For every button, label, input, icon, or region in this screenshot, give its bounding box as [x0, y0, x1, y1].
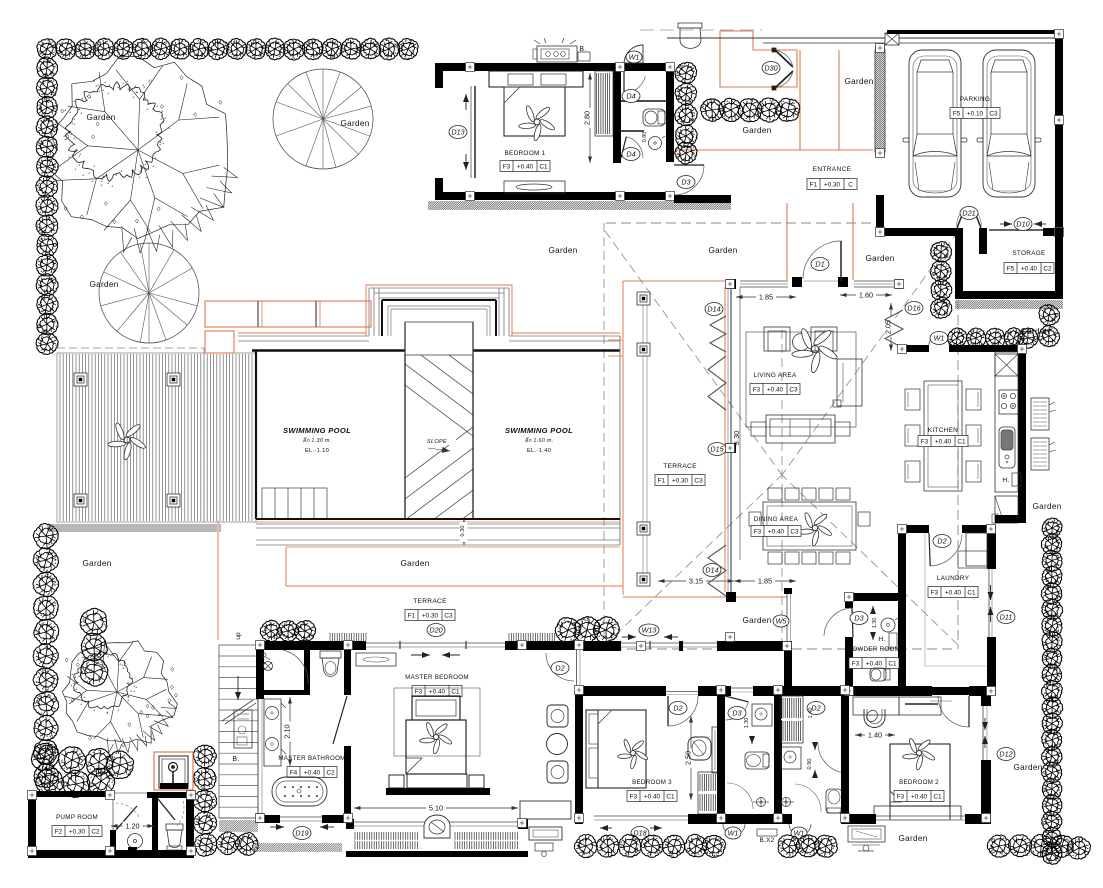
- svg-text:BEDROOM 2: BEDROOM 2: [899, 779, 939, 786]
- svg-text:Garden: Garden: [742, 616, 771, 625]
- svg-text:Garden: Garden: [82, 559, 111, 568]
- svg-text:F3: F3: [753, 386, 761, 393]
- svg-text:Garden: Garden: [1032, 502, 1061, 511]
- svg-text:D21: D21: [962, 209, 975, 218]
- svg-text:+0.40: +0.40: [1021, 265, 1038, 272]
- svg-text:+0.10: +0.10: [967, 110, 984, 117]
- svg-text:D1: D1: [815, 260, 824, 269]
- svg-text:F3: F3: [503, 163, 511, 170]
- svg-text:2.80: 2.80: [583, 111, 592, 125]
- svg-text:W5: W5: [776, 617, 788, 626]
- svg-text:BEDROOM 3: BEDROOM 3: [632, 779, 672, 786]
- svg-text:+0.30: +0.30: [672, 477, 689, 484]
- svg-text:W1: W1: [629, 53, 640, 62]
- svg-text:+0.30: +0.30: [422, 612, 439, 619]
- svg-text:D10: D10: [1016, 220, 1029, 229]
- svg-text:Garden: Garden: [844, 77, 873, 86]
- svg-text:STORAGE: STORAGE: [1012, 250, 1045, 257]
- svg-text:D14: D14: [705, 566, 718, 575]
- svg-text:Garden: Garden: [89, 280, 118, 289]
- svg-text:+0.40: +0.40: [304, 769, 321, 776]
- svg-text:LIVING AREA: LIVING AREA: [753, 372, 797, 379]
- svg-text:F3: F3: [852, 660, 860, 667]
- svg-text:SLOPE: SLOPE: [427, 439, 447, 445]
- svg-text:EL.-1.40: EL.-1.40: [527, 448, 551, 454]
- svg-text:TERRACE: TERRACE: [663, 463, 697, 470]
- svg-text:SWIMMING POOL: SWIMMING POOL: [283, 426, 351, 435]
- svg-text:EL.-1.10: EL.-1.10: [305, 448, 329, 454]
- svg-text:D3: D3: [732, 709, 741, 718]
- svg-text:D2: D2: [673, 704, 682, 713]
- svg-text:up: up: [235, 632, 242, 640]
- svg-text:F3: F3: [630, 793, 638, 800]
- svg-text:PUMP ROOM: PUMP ROOM: [56, 814, 98, 821]
- svg-text:F5: F5: [953, 110, 961, 117]
- svg-text:MASTER BEDROOM: MASTER BEDROOM: [405, 674, 469, 681]
- svg-text:C3: C3: [694, 477, 703, 484]
- svg-text:C1: C1: [666, 793, 675, 800]
- svg-text:D12: D12: [999, 750, 1012, 759]
- svg-text:+0.40: +0.40: [517, 163, 534, 170]
- svg-text:+0.40: +0.40: [644, 793, 661, 800]
- svg-text:1.85: 1.85: [759, 293, 773, 302]
- svg-text:+0.40: +0.40: [945, 589, 962, 596]
- svg-text:F5: F5: [1007, 265, 1015, 272]
- svg-text:D3: D3: [854, 614, 863, 623]
- svg-text:Garden: Garden: [708, 246, 737, 255]
- svg-text:3.15: 3.15: [689, 577, 703, 586]
- svg-text:C: C: [848, 181, 853, 188]
- svg-text:D30: D30: [764, 64, 777, 73]
- svg-text:POWDER ROOM: POWDER ROOM: [848, 646, 900, 653]
- svg-text:+0.40: +0.40: [911, 793, 928, 800]
- svg-text:C3: C3: [444, 612, 453, 619]
- svg-text:SWIMMING POOL: SWIMMING POOL: [505, 426, 573, 435]
- svg-text:F3: F3: [415, 688, 423, 695]
- svg-text:C1: C1: [888, 660, 897, 667]
- svg-text:1.40: 1.40: [808, 708, 814, 719]
- svg-text:+0.40: +0.40: [935, 438, 952, 445]
- svg-text:ลึก 1.30 m.: ลึก 1.30 m.: [302, 437, 331, 444]
- svg-text:C1: C1: [539, 163, 548, 170]
- svg-text:D19: D19: [295, 829, 308, 838]
- svg-text:F4: F4: [290, 769, 298, 776]
- svg-text:1.85: 1.85: [758, 577, 772, 586]
- svg-text:Garden: Garden: [86, 113, 115, 122]
- svg-text:F2: F2: [55, 828, 63, 835]
- svg-text:C1: C1: [451, 688, 460, 695]
- svg-text:F3: F3: [897, 793, 905, 800]
- svg-text:B.X2: B.X2: [759, 837, 774, 844]
- svg-text:Garden: Garden: [898, 834, 927, 843]
- svg-text:Garden: Garden: [340, 119, 369, 128]
- svg-text:+0.40: +0.40: [866, 660, 883, 667]
- svg-text:D15: D15: [710, 445, 724, 454]
- svg-text:DINING AREA: DINING AREA: [754, 516, 799, 523]
- svg-text:D16: D16: [907, 304, 920, 313]
- svg-text:Garden: Garden: [1013, 763, 1042, 772]
- svg-text:C1: C1: [933, 793, 942, 800]
- svg-text:H.: H.: [878, 636, 885, 643]
- svg-text:B.: B.: [232, 756, 239, 763]
- svg-text:1.60: 1.60: [859, 291, 873, 300]
- svg-text:F3: F3: [921, 438, 929, 445]
- svg-text:KITCHEN: KITCHEN: [928, 427, 958, 434]
- svg-text:0.30: 0.30: [460, 526, 466, 537]
- svg-text:ลึก 1.60 m.: ลึก 1.60 m.: [524, 437, 553, 444]
- svg-text:1.20: 1.20: [125, 822, 139, 831]
- svg-text:F1: F1: [658, 477, 666, 484]
- svg-text:C3: C3: [989, 110, 998, 117]
- svg-text:2.10: 2.10: [283, 724, 292, 738]
- svg-text:0.90: 0.90: [807, 759, 813, 770]
- svg-text:D2: D2: [937, 537, 946, 546]
- svg-text:D2: D2: [555, 664, 564, 673]
- svg-text:W1: W1: [728, 829, 739, 838]
- svg-text:C2: C2: [91, 828, 100, 835]
- svg-text:D4: D4: [626, 92, 635, 101]
- svg-text:Garden: Garden: [400, 559, 429, 568]
- svg-text:F1: F1: [810, 181, 818, 188]
- svg-text:TERRACE: TERRACE: [413, 598, 447, 605]
- svg-text:C1: C1: [957, 438, 966, 445]
- svg-text:F3: F3: [754, 528, 762, 535]
- svg-text:MASTER BATHROOM: MASTER BATHROOM: [278, 755, 345, 762]
- svg-text:1.30: 1.30: [872, 618, 878, 629]
- svg-text:B.: B.: [579, 46, 586, 53]
- svg-text:5.10: 5.10: [429, 804, 443, 813]
- svg-text:2.05: 2.05: [884, 320, 893, 334]
- svg-text:D11: D11: [1000, 613, 1013, 622]
- svg-text:BEDROOM 1: BEDROOM 1: [504, 150, 545, 157]
- svg-text:F1: F1: [408, 612, 416, 619]
- svg-text:ENTRANCE: ENTRANCE: [813, 166, 852, 173]
- svg-text:Garden: Garden: [742, 126, 771, 135]
- svg-text:LAUNDRY: LAUNDRY: [937, 575, 970, 582]
- svg-text:1.40: 1.40: [868, 731, 882, 740]
- svg-text:W1: W1: [934, 334, 945, 343]
- svg-text:0.80: 0.80: [642, 132, 648, 143]
- svg-text:+0.30: +0.30: [69, 828, 86, 835]
- svg-text:D3: D3: [681, 178, 690, 187]
- svg-text:D20: D20: [429, 626, 442, 635]
- svg-text:C3: C3: [790, 528, 799, 535]
- svg-text:+0.40: +0.40: [768, 528, 785, 535]
- svg-text:Garden: Garden: [548, 246, 577, 255]
- svg-text:9.30: 9.30: [732, 431, 741, 446]
- svg-text:Garden: Garden: [865, 254, 894, 263]
- svg-text:D13: D13: [451, 128, 464, 137]
- svg-text:H.: H.: [1002, 477, 1009, 484]
- svg-text:C3: C3: [789, 386, 798, 393]
- svg-text:D14: D14: [707, 305, 720, 314]
- svg-text:+0.40: +0.40: [429, 688, 446, 695]
- svg-text:W13: W13: [642, 626, 657, 635]
- svg-text:D4: D4: [626, 150, 635, 159]
- svg-text:+0.40: +0.40: [767, 386, 784, 393]
- svg-text:PARKING: PARKING: [960, 96, 990, 103]
- svg-text:F3: F3: [931, 589, 939, 596]
- svg-text:C2: C2: [1043, 265, 1052, 272]
- svg-text:+0.30: +0.30: [824, 181, 841, 188]
- svg-text:C2: C2: [326, 769, 335, 776]
- svg-text:1.30: 1.30: [744, 718, 750, 729]
- svg-text:C1: C1: [967, 589, 976, 596]
